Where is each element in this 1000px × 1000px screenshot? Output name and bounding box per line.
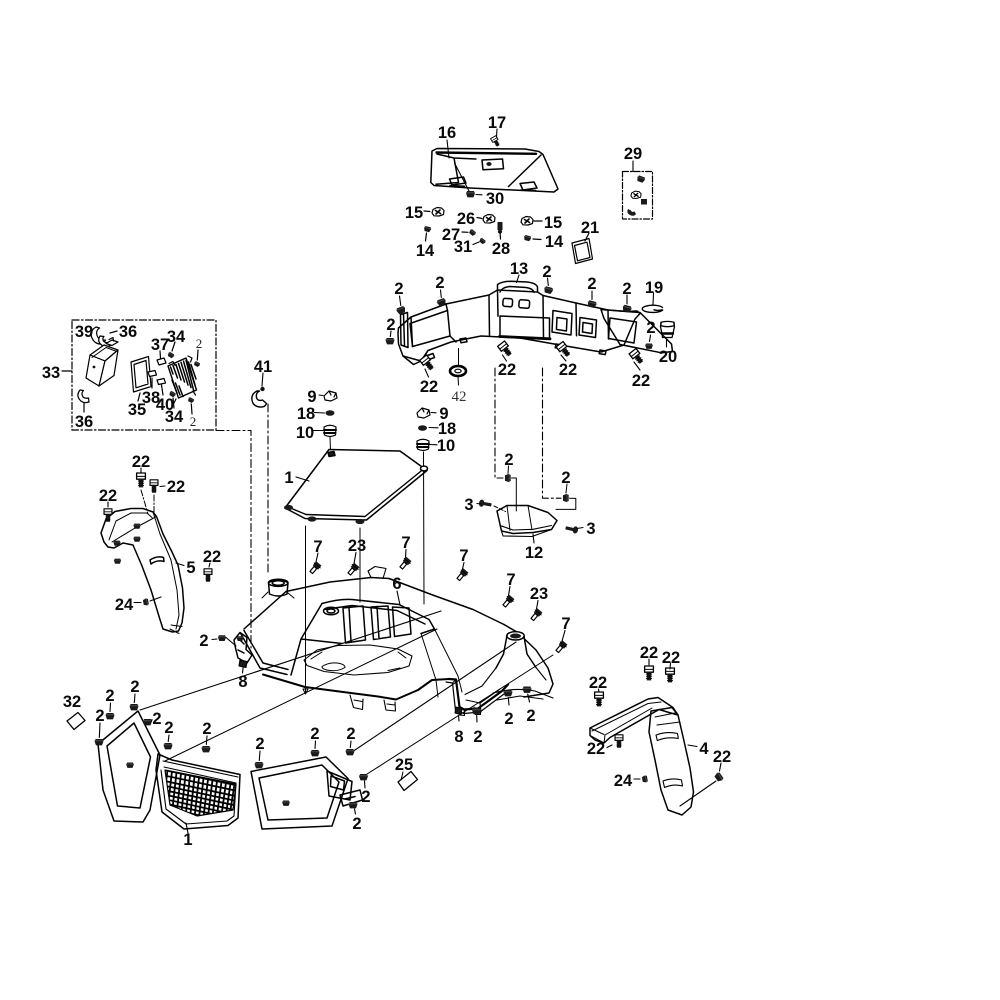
svg-text:2: 2 bbox=[542, 263, 551, 281]
svg-text:36: 36 bbox=[75, 413, 93, 431]
svg-text:2: 2 bbox=[361, 788, 370, 806]
svg-text:19: 19 bbox=[645, 279, 663, 297]
svg-text:4: 4 bbox=[699, 740, 709, 758]
svg-text:7: 7 bbox=[506, 571, 515, 589]
svg-text:3: 3 bbox=[586, 520, 595, 538]
svg-text:2: 2 bbox=[352, 815, 361, 833]
svg-text:41: 41 bbox=[254, 358, 272, 376]
svg-text:6: 6 bbox=[392, 575, 401, 593]
svg-text:1: 1 bbox=[284, 469, 293, 487]
svg-text:24: 24 bbox=[115, 596, 134, 614]
svg-text:7: 7 bbox=[313, 538, 322, 556]
svg-text:18: 18 bbox=[297, 405, 315, 423]
svg-text:2: 2 bbox=[587, 275, 596, 293]
svg-text:2: 2 bbox=[561, 469, 570, 487]
svg-text:7: 7 bbox=[401, 534, 410, 552]
svg-text:2: 2 bbox=[386, 316, 395, 334]
svg-text:22: 22 bbox=[132, 453, 150, 471]
svg-text:22: 22 bbox=[587, 740, 605, 758]
svg-text:42: 42 bbox=[452, 389, 467, 405]
svg-text:22: 22 bbox=[167, 478, 185, 496]
svg-text:2: 2 bbox=[622, 280, 631, 298]
svg-text:2: 2 bbox=[504, 710, 513, 728]
svg-text:33: 33 bbox=[42, 364, 60, 382]
svg-text:7: 7 bbox=[561, 615, 570, 633]
svg-text:8: 8 bbox=[454, 728, 463, 746]
svg-text:39: 39 bbox=[75, 323, 93, 341]
svg-text:13: 13 bbox=[510, 260, 528, 278]
svg-text:22: 22 bbox=[99, 487, 117, 505]
svg-text:34: 34 bbox=[167, 328, 186, 346]
svg-text:32: 32 bbox=[63, 693, 81, 711]
svg-text:28: 28 bbox=[492, 240, 510, 258]
svg-text:2: 2 bbox=[202, 720, 211, 738]
svg-text:31: 31 bbox=[454, 238, 472, 256]
svg-text:2: 2 bbox=[473, 728, 482, 746]
svg-text:2: 2 bbox=[190, 414, 197, 429]
svg-text:3: 3 bbox=[464, 496, 473, 514]
svg-text:22: 22 bbox=[640, 644, 658, 662]
svg-text:15: 15 bbox=[544, 214, 562, 232]
svg-text:2: 2 bbox=[130, 678, 139, 696]
svg-text:24: 24 bbox=[614, 772, 633, 790]
svg-text:1: 1 bbox=[183, 831, 192, 849]
svg-text:25: 25 bbox=[395, 756, 413, 774]
svg-text:34: 34 bbox=[165, 408, 184, 426]
svg-text:18: 18 bbox=[438, 420, 456, 438]
svg-text:2: 2 bbox=[394, 280, 403, 298]
svg-text:8: 8 bbox=[238, 673, 247, 691]
svg-text:22: 22 bbox=[662, 649, 680, 667]
svg-text:2: 2 bbox=[504, 451, 513, 469]
svg-text:2: 2 bbox=[310, 725, 319, 743]
svg-text:20: 20 bbox=[659, 348, 677, 366]
svg-text:2: 2 bbox=[95, 707, 104, 725]
svg-text:7: 7 bbox=[459, 547, 468, 565]
svg-text:2: 2 bbox=[164, 719, 173, 737]
svg-text:2: 2 bbox=[255, 735, 264, 753]
svg-text:2: 2 bbox=[526, 707, 535, 725]
svg-text:14: 14 bbox=[545, 233, 564, 251]
svg-text:23: 23 bbox=[530, 585, 548, 603]
svg-text:2: 2 bbox=[105, 687, 114, 705]
svg-text:10: 10 bbox=[437, 437, 455, 455]
svg-text:22: 22 bbox=[589, 674, 607, 692]
svg-text:22: 22 bbox=[498, 361, 516, 379]
svg-text:2: 2 bbox=[435, 274, 444, 292]
svg-text:2: 2 bbox=[196, 336, 203, 351]
svg-text:5: 5 bbox=[186, 559, 195, 577]
svg-text:21: 21 bbox=[581, 219, 599, 237]
svg-text:2: 2 bbox=[346, 725, 355, 743]
svg-text:22: 22 bbox=[420, 378, 438, 396]
svg-text:10: 10 bbox=[296, 424, 314, 442]
svg-text:22: 22 bbox=[559, 361, 577, 379]
svg-text:15: 15 bbox=[405, 204, 423, 222]
svg-text:12: 12 bbox=[525, 544, 543, 562]
svg-text:2: 2 bbox=[646, 319, 655, 337]
svg-text:36: 36 bbox=[119, 323, 137, 341]
svg-text:14: 14 bbox=[416, 242, 435, 260]
svg-text:22: 22 bbox=[713, 748, 731, 766]
svg-text:29: 29 bbox=[624, 145, 642, 163]
svg-text:2: 2 bbox=[152, 710, 161, 728]
svg-text:23: 23 bbox=[348, 537, 366, 555]
svg-text:2: 2 bbox=[199, 632, 208, 650]
svg-text:30: 30 bbox=[486, 190, 504, 208]
svg-text:9: 9 bbox=[307, 388, 316, 406]
svg-text:22: 22 bbox=[632, 372, 650, 390]
svg-text:17: 17 bbox=[488, 114, 506, 132]
svg-text:22: 22 bbox=[203, 548, 221, 566]
svg-text:16: 16 bbox=[438, 124, 456, 142]
